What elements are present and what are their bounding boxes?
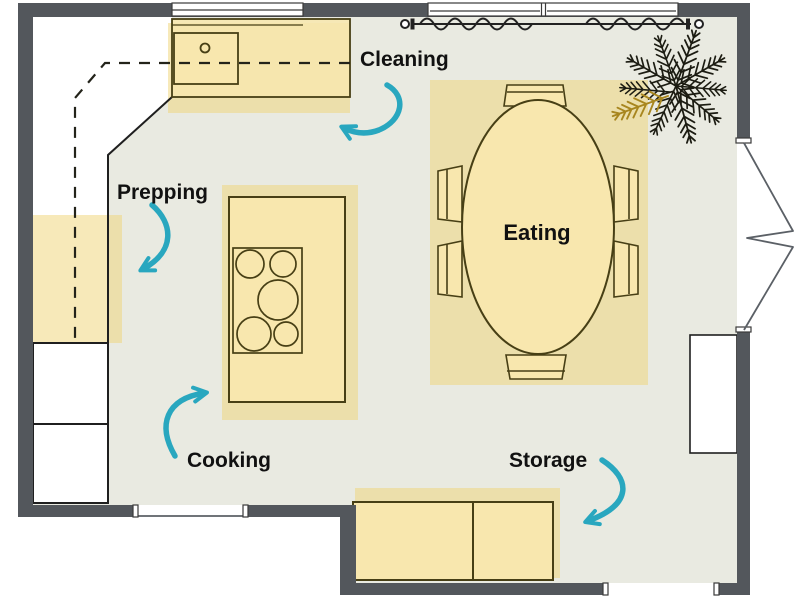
doorway-bottom-left (133, 505, 248, 517)
sink (174, 33, 238, 84)
window-top-right (428, 3, 678, 16)
window-top-left (172, 3, 303, 16)
chair-left-top (438, 166, 462, 222)
wall-step (340, 505, 356, 595)
left-cabinet-lower (33, 424, 108, 503)
kitchen-island (229, 197, 345, 402)
french-door (736, 138, 793, 332)
curtain-ring-right (695, 20, 703, 28)
storage-cabinets (353, 502, 553, 580)
chair-right-bottom (614, 241, 638, 297)
chair-bottom (506, 355, 566, 379)
floor-plan: Cleaning Prepping Eating Cooking Storage (0, 0, 800, 600)
wall-left (18, 3, 33, 517)
floor-plan-canvas: Cleaning Prepping Eating Cooking Storage (0, 0, 800, 600)
sink-counter (172, 19, 350, 97)
chair-right-top (614, 166, 638, 222)
door-swing-lines (744, 143, 793, 330)
label-cleaning: Cleaning (360, 48, 449, 71)
label-storage: Storage (509, 449, 587, 472)
curtain-ring-left (401, 20, 409, 28)
left-cabinet-upper (33, 343, 108, 424)
label-prepping: Prepping (117, 181, 208, 204)
label-cooking: Cooking (187, 449, 271, 472)
pantry-cabinet (690, 335, 737, 453)
window-bottom (603, 583, 719, 595)
label-eating: Eating (503, 220, 570, 245)
chair-left-bottom (438, 241, 462, 297)
